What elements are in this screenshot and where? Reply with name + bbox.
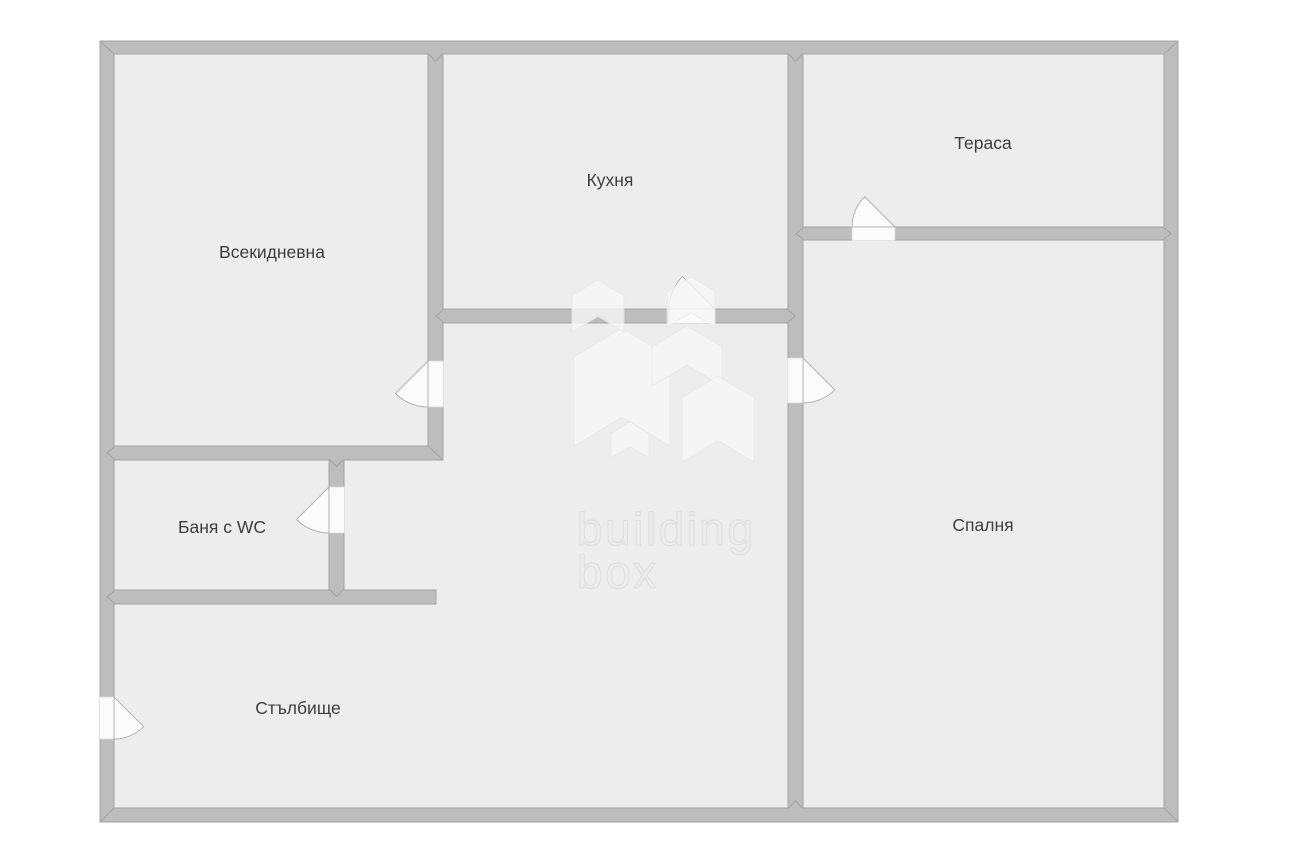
wall-seam-mask (802, 228, 803, 240)
floor-plan-canvas: building box Всекидневна Кухня Тераса Ба… (0, 0, 1308, 863)
label-staircase: Стълбище (255, 698, 341, 718)
door-gap (427, 361, 443, 407)
door-gap (328, 487, 344, 533)
room-staircase (114, 604, 788, 808)
floor-plan: building box Всекидневна Кухня Тераса Ба… (0, 0, 1308, 863)
wall-seam-mask (442, 310, 443, 323)
wall-seam-mask (789, 53, 803, 54)
watermark-text-line2: box (577, 546, 659, 598)
wall-seam-mask (429, 53, 443, 54)
door-gap (787, 358, 803, 403)
wall-seam-mask (1163, 228, 1164, 240)
label-bathroom-wc: Баня с WC (178, 517, 266, 537)
door-gap (852, 226, 895, 240)
wall-seam-mask (330, 589, 344, 590)
label-terrace: Тераса (954, 133, 1012, 153)
wall-seam-mask (113, 447, 114, 460)
wall-seam-mask (330, 459, 344, 460)
wall-bathroom-bottom (114, 590, 436, 604)
wall-seam-mask (789, 807, 803, 808)
label-bedroom: Спалня (952, 515, 1013, 535)
label-living-room: Всекидневна (219, 242, 325, 262)
door-gap (99, 697, 114, 739)
wall-seam-mask (113, 591, 114, 604)
wall-central-vertical (788, 54, 803, 808)
wall-seam-mask (787, 310, 788, 323)
label-kitchen: Кухня (587, 170, 634, 190)
